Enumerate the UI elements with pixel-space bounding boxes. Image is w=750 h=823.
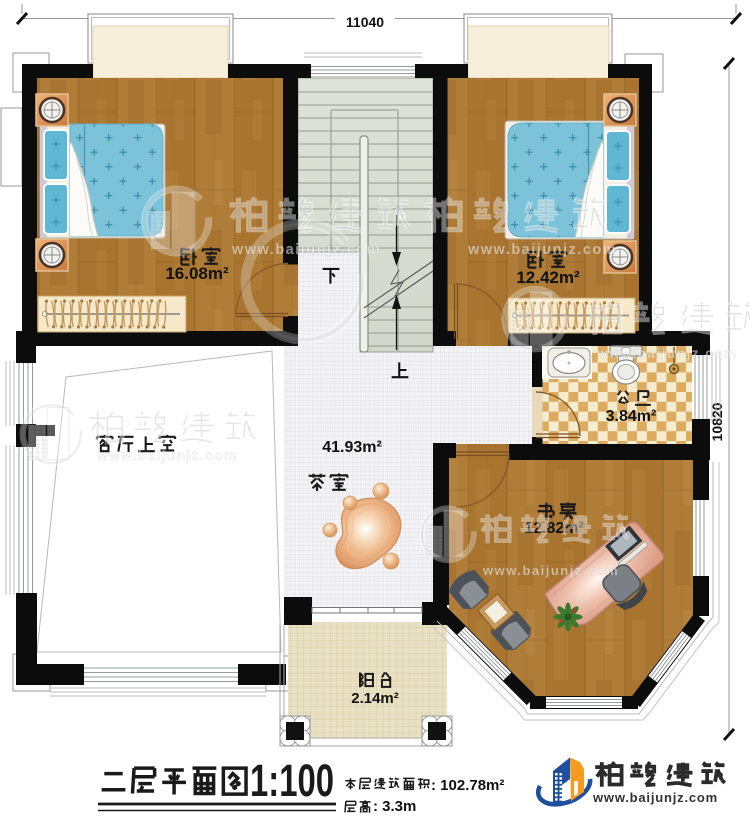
- svg-text:www.baijunjz.com: www.baijunjz.com: [592, 790, 718, 805]
- svg-text:1:100: 1:100: [250, 756, 334, 806]
- svg-text:11040: 11040: [346, 14, 384, 30]
- svg-text:: 102.78m²: : 102.78m²: [431, 777, 504, 794]
- svg-text:www.baijunjz.com: www.baijunjz.com: [482, 563, 619, 578]
- svg-text:www.baijunjz.com: www.baijunjz.com: [467, 242, 617, 258]
- svg-text:www.baijunjz.com: www.baijunjz.com: [96, 448, 238, 463]
- svg-text:: 3.3m: : 3.3m: [373, 798, 416, 815]
- svg-text:3.84m²: 3.84m²: [606, 408, 657, 425]
- svg-text:10820: 10820: [709, 402, 725, 441]
- svg-text:2.14m²: 2.14m²: [351, 690, 399, 707]
- svg-text:www.baijunjz.com: www.baijunjz.com: [596, 346, 738, 361]
- svg-text:16.08m²: 16.08m²: [165, 264, 229, 283]
- svg-text:12.42m²: 12.42m²: [516, 268, 580, 287]
- svg-text:41.93m²: 41.93m²: [322, 439, 382, 456]
